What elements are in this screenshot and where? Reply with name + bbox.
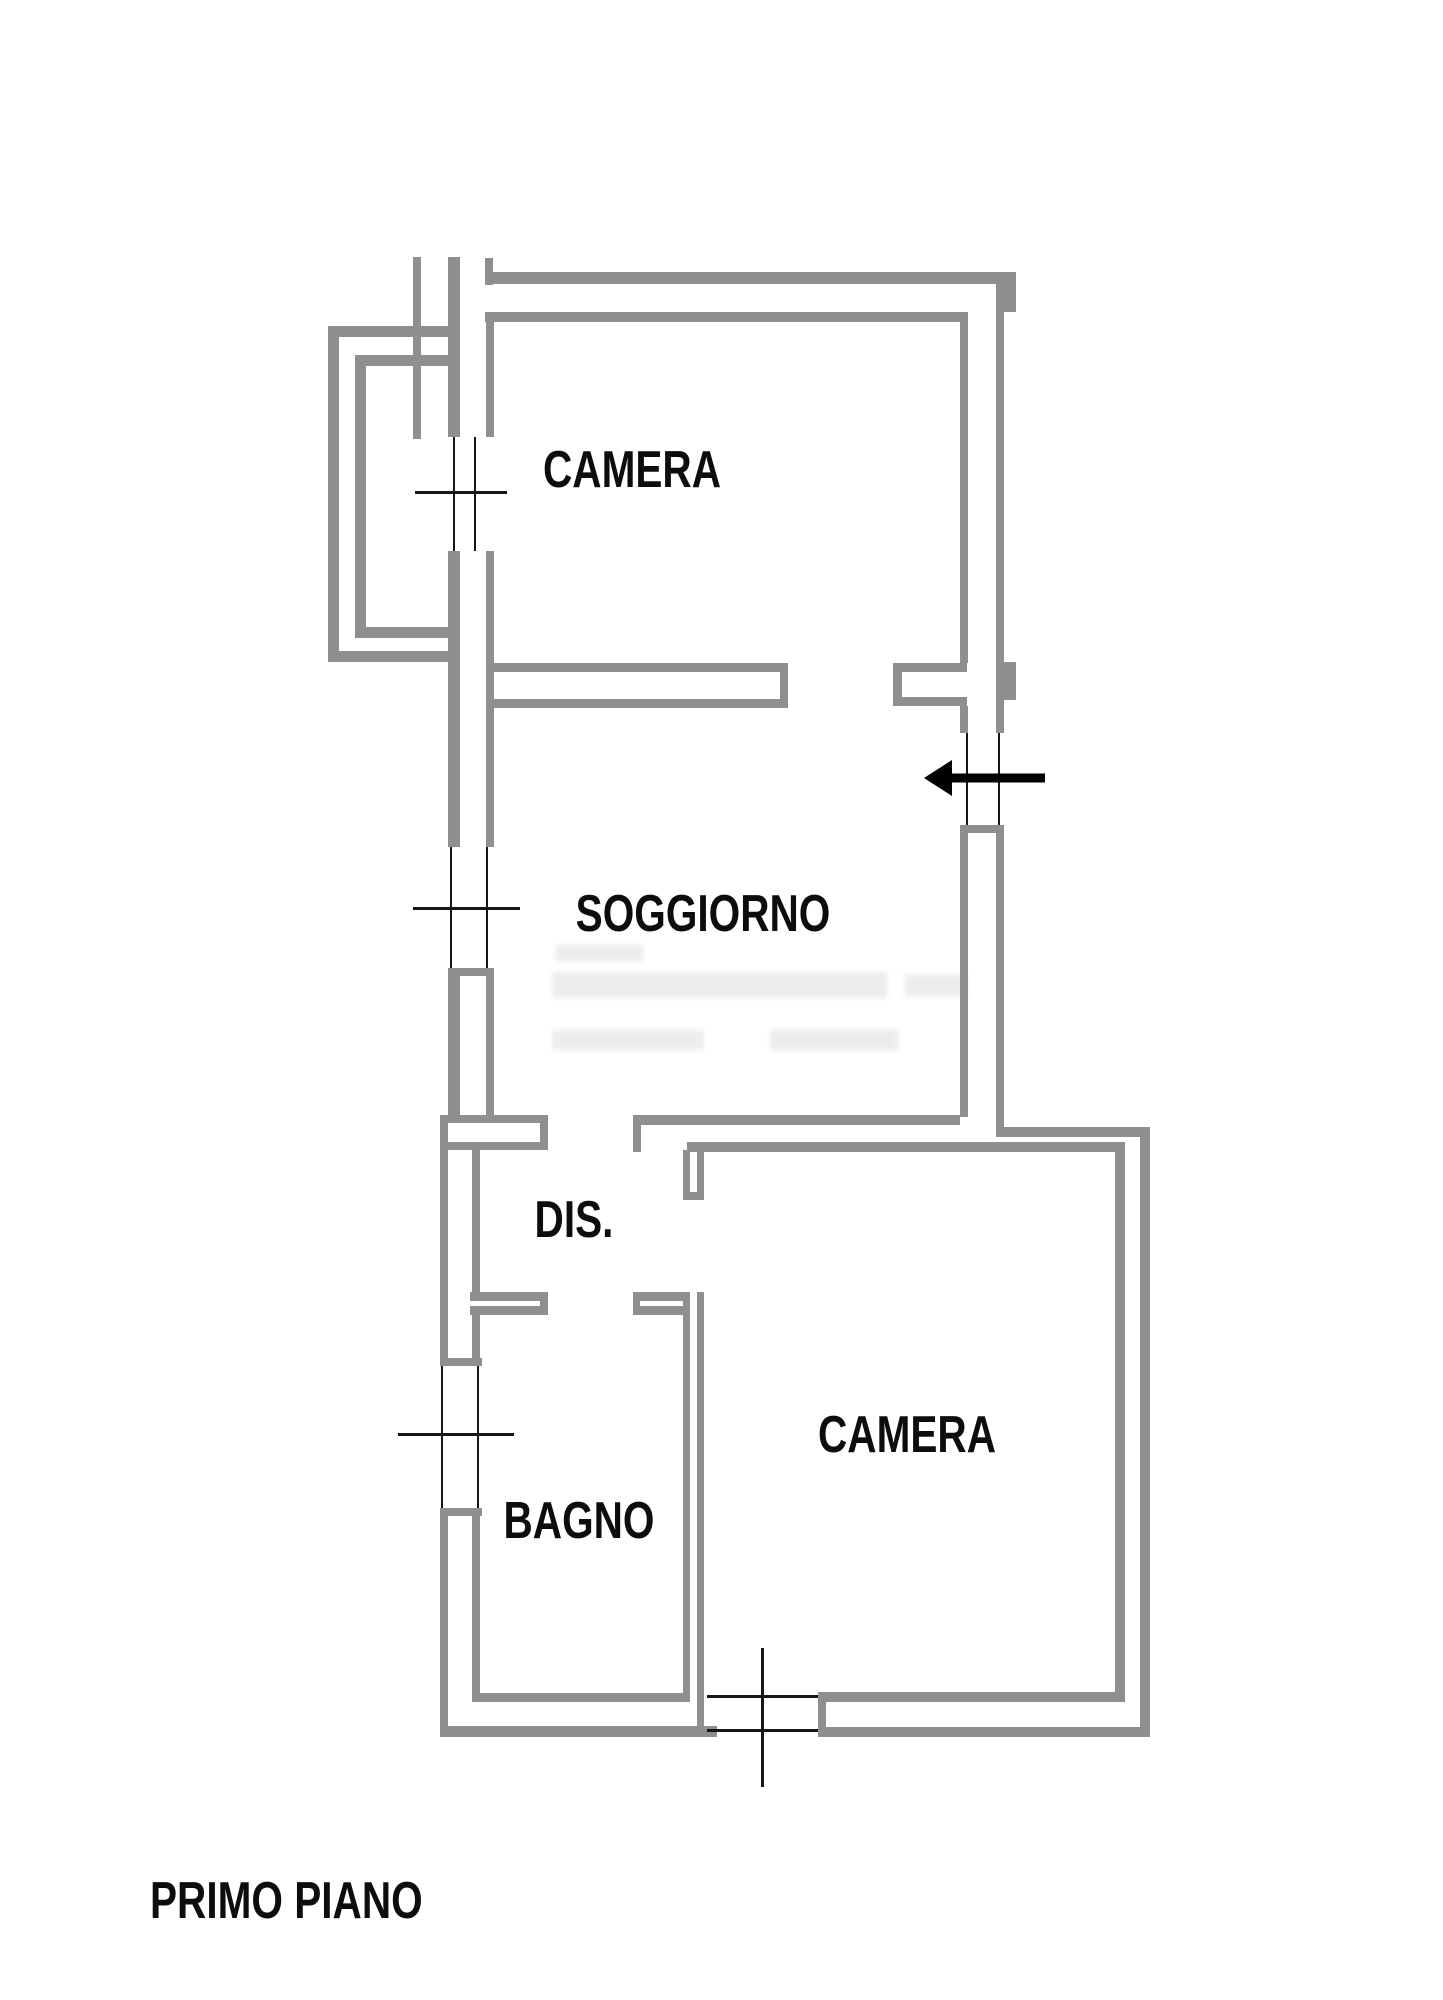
wall-segment — [540, 1115, 548, 1150]
window-symbol-line — [477, 1366, 479, 1508]
wall-segment — [683, 1292, 690, 1702]
room-label-soggiorno: SOGGIORNO — [576, 884, 831, 944]
wall-segment — [355, 355, 366, 638]
wall-segment — [328, 326, 452, 337]
wall-segment — [440, 1726, 717, 1737]
wall-segment — [486, 968, 494, 1115]
wall-segment — [440, 1516, 448, 1737]
wall-segment — [633, 1115, 641, 1152]
wall-segment — [633, 1292, 683, 1301]
wall-segment — [448, 968, 494, 976]
wall-segment — [960, 825, 1004, 833]
watermark-smudge — [552, 1030, 704, 1050]
floorplan-page: CAMERA SOGGIORNO DIS. CAMERA BAGNO PRIMO… — [0, 0, 1443, 2000]
wall-segment — [1004, 662, 1016, 700]
wall-segment — [485, 312, 968, 322]
watermark-smudge — [552, 972, 887, 998]
wall-segment — [413, 257, 421, 439]
wall-segment — [818, 1727, 1150, 1737]
wall-segment — [1140, 1127, 1150, 1737]
plan-background — [0, 0, 1443, 2000]
wall-segment — [633, 1292, 640, 1315]
wall-segment — [472, 1315, 480, 1358]
wall-segment — [633, 1115, 960, 1125]
room-label-dis: DIS. — [535, 1190, 614, 1250]
wall-segment — [440, 1508, 482, 1516]
wall-segment — [470, 1292, 548, 1301]
wall-segment — [818, 1692, 1115, 1702]
wall-segment — [440, 1292, 448, 1358]
wall-segment — [485, 258, 493, 285]
wall-segment — [697, 1292, 704, 1726]
wall-segment — [893, 697, 967, 706]
floorplan-canvas — [0, 0, 1443, 2000]
wall-segment — [633, 1306, 683, 1315]
wall-segment — [687, 1142, 1125, 1152]
window-symbol-line — [398, 1433, 514, 1436]
wall-segment — [1115, 1142, 1125, 1702]
wall-segment — [448, 257, 460, 437]
watermark-smudge — [905, 975, 967, 997]
wall-segment — [893, 663, 902, 706]
wall-segment — [486, 312, 494, 437]
window-symbol-line — [441, 1366, 443, 1508]
room-label-bagno: BAGNO — [504, 1491, 655, 1551]
wall-segment — [355, 355, 456, 366]
wall-segment — [960, 706, 968, 733]
wall-segment — [448, 968, 460, 1115]
wall-segment — [472, 1516, 480, 1693]
wall-segment — [328, 326, 339, 662]
wall-segment — [683, 1192, 704, 1200]
wall-segment — [996, 700, 1004, 733]
floor-title: PRIMO PIANO — [150, 1871, 423, 1931]
watermark-smudge — [555, 945, 643, 961]
wall-segment — [470, 1306, 548, 1315]
wall-segment — [780, 663, 788, 708]
wall-segment — [440, 1115, 548, 1123]
wall-segment — [493, 272, 1016, 284]
room-label-camera-top: CAMERA — [543, 440, 721, 500]
wall-segment — [472, 1693, 690, 1702]
window-symbol-line — [413, 907, 520, 910]
window-symbol-line — [761, 1648, 764, 1787]
wall-segment — [540, 1292, 548, 1315]
wall-segment — [472, 1150, 480, 1292]
wall-segment — [440, 1358, 482, 1366]
wall-segment — [960, 833, 968, 1117]
wall-segment — [996, 1127, 1148, 1137]
room-label-camera-bottom: CAMERA — [818, 1405, 996, 1465]
wall-segment — [996, 833, 1004, 1127]
wall-segment — [486, 663, 788, 672]
wall-segment — [1004, 272, 1016, 312]
wall-segment — [440, 1115, 448, 1150]
wall-segment — [960, 322, 968, 663]
wall-segment — [494, 699, 788, 708]
window-symbol-line — [415, 491, 507, 494]
wall-segment — [440, 1142, 548, 1150]
wall-segment — [440, 1150, 448, 1292]
watermark-smudge — [770, 1030, 898, 1050]
wall-segment — [486, 551, 494, 847]
wall-segment — [328, 651, 452, 662]
wall-segment — [996, 284, 1004, 700]
wall-segment — [893, 663, 967, 672]
wall-segment — [355, 627, 456, 638]
wall-segment — [448, 551, 460, 847]
